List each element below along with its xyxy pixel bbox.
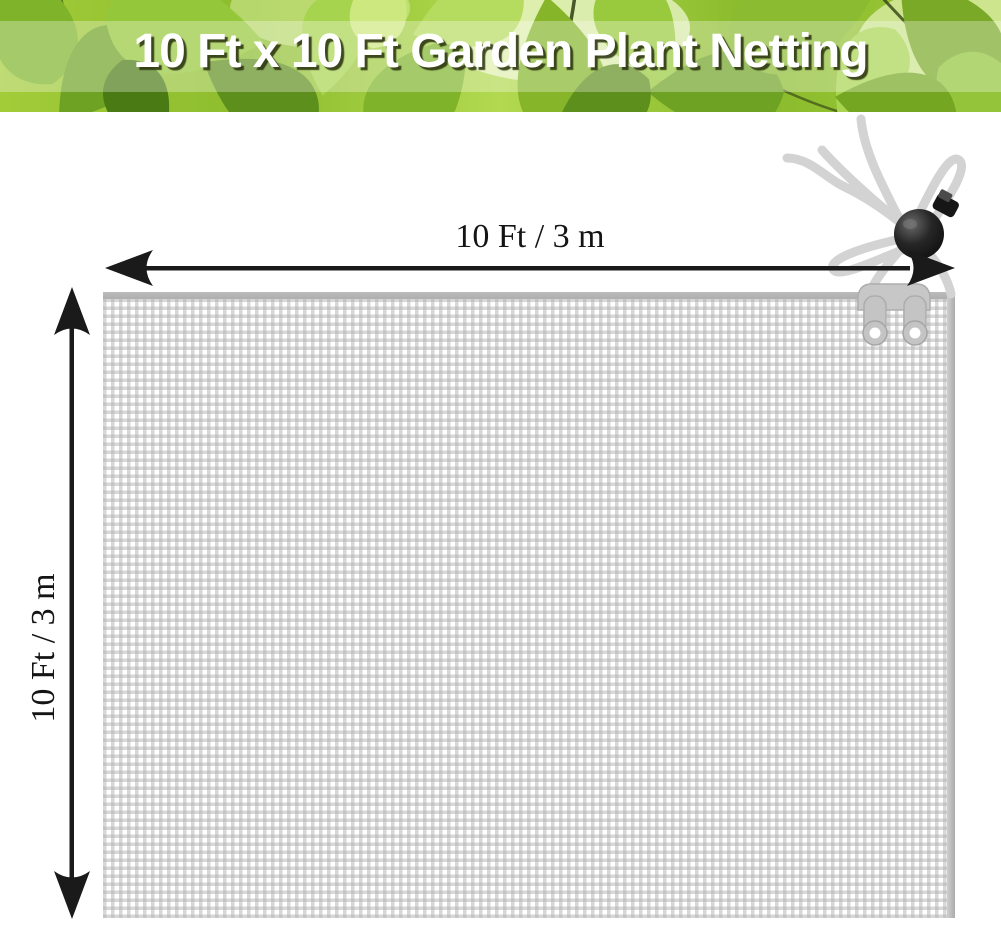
banner: 10 Ft x 10 Ft Garden Plant Netting	[0, 0, 1001, 112]
height-dimension-label: 10 Ft / 3 m	[25, 573, 63, 722]
page-title: 10 Ft x 10 Ft Garden Plant Netting	[0, 26, 1001, 79]
tie-rope	[787, 119, 962, 294]
product-image: 10 Ft x 10 Ft Garden Plant Netting 10 Ft…	[0, 0, 1001, 925]
width-dimension-label: 10 Ft / 3 m	[105, 218, 955, 256]
netting-mesh	[103, 292, 955, 918]
